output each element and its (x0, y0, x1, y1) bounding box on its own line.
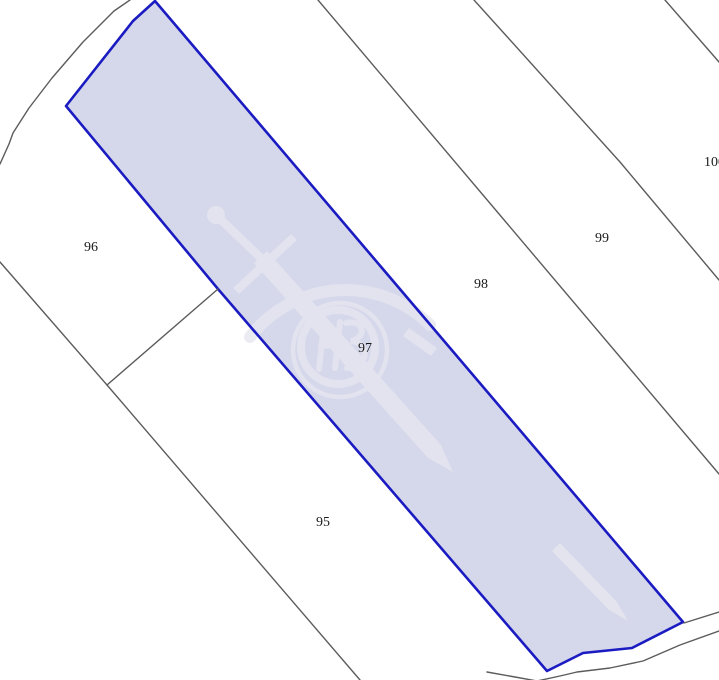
map-canvas[interactable]: 95 96 97 98 99 100 (0, 0, 719, 680)
parcel-label-100: 100 (704, 155, 719, 170)
parcel-label-97: 97 (358, 341, 372, 356)
parcel-label-96: 96 (84, 240, 98, 255)
parcel-label-95: 95 (316, 515, 330, 530)
cadastral-map-view: 95 96 97 98 99 100 (0, 0, 719, 680)
parcel-label-99: 99 (595, 231, 609, 246)
parcel-label-98: 98 (474, 277, 488, 292)
